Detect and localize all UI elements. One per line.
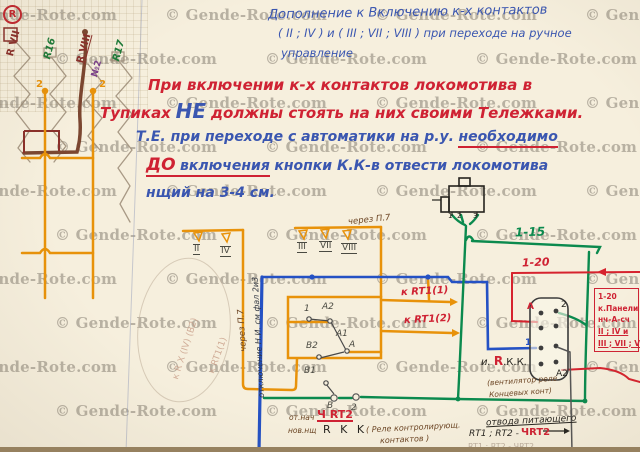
- pin-label-2: 2: [561, 301, 567, 310]
- red-wire-label-1-20: 1-20: [522, 257, 550, 269]
- page-bottom-edge: [0, 447, 640, 452]
- note-line2-red1: Тупиках: [100, 104, 171, 122]
- note-line1: При включении к-х контактов локомотива в: [148, 78, 532, 93]
- note-line3-underlined: необходимо: [458, 129, 557, 148]
- red-box-line2: к.Панели: [598, 303, 638, 315]
- note-line2-blue: НЕ: [176, 99, 206, 123]
- contact-label-iii: III: [297, 242, 307, 253]
- red-box-line4: II ; IV и: [598, 326, 638, 338]
- scanned-schematic-page: © Gende-Rote.com© Gende-Rote.com© Gende-…: [0, 0, 640, 452]
- note-line4-blue1: включения: [180, 158, 270, 174]
- page-crease-line: [126, 0, 142, 452]
- switch-label-b2: B2: [306, 342, 318, 351]
- red-box-line1: 1-20: [598, 291, 638, 303]
- contact-label-iv: IV: [220, 246, 231, 257]
- switch-terminal-2: [353, 394, 359, 400]
- red-box-line3: нч-А-сч: [598, 314, 638, 326]
- note-line4-red: ДО: [146, 155, 176, 175]
- switch-label-1: 1: [304, 305, 310, 314]
- switch-label-a1: A1: [336, 330, 348, 339]
- switch-label-b1: B1: [304, 367, 316, 376]
- header-note-line2: ( II ; IV ) и ( III ; VII ; VIII ) при п…: [278, 28, 572, 40]
- device-pin-2: 2: [457, 213, 461, 220]
- device-pin-3: 3: [473, 213, 477, 220]
- green-wire-label-1-15: 1-15: [515, 225, 545, 238]
- switch-label-a: A: [349, 341, 355, 350]
- otvod-red: ЧRT2: [521, 428, 550, 438]
- pencil-oval-sketch: [131, 254, 238, 407]
- rkk-prefix: и.: [481, 357, 491, 368]
- rkk-r: R: [494, 354, 503, 368]
- device-pin-1: 1: [448, 213, 452, 220]
- header-note-line3: управление: [281, 48, 353, 60]
- relay-connector: [530, 298, 568, 380]
- contact-label-ii: II: [193, 244, 200, 255]
- note-line4-blue2: кнопки К.К-в отвести локомотива: [274, 158, 548, 174]
- note-line2-red2: должны стоять на них своими Тележками.: [211, 104, 583, 122]
- red-annotation-box: 1-20 к.Панели нч-А-сч II ; IV и III ; VI…: [594, 288, 639, 352]
- wire-label-2a: 2: [36, 80, 43, 90]
- note-line5: нщий на 3-4 см.: [146, 186, 275, 200]
- bottom-ot-nach: от.нач: [289, 414, 314, 422]
- otvod-line2: RT1 ; RT2 -: [469, 430, 519, 439]
- contact-label-viii: VIII: [341, 243, 357, 254]
- wire-label-2b: 2: [99, 80, 106, 90]
- rkk-suffix: .К.К.: [503, 357, 527, 368]
- end-switch-device: [432, 178, 484, 216]
- pin-label-a: A: [527, 303, 534, 312]
- red-box-line5: III ; VII ; VIII: [598, 338, 638, 350]
- note-line3-blue: Т.Е. при переходе с автоматики на р.у.: [136, 129, 454, 145]
- pin-label-1: 1: [525, 339, 531, 348]
- bottom-rkk: R K K: [323, 424, 367, 435]
- switch-label-a2: A2: [322, 303, 334, 312]
- bottom-nov: нов.нщ: [288, 427, 316, 435]
- contact-label-vii: VII: [319, 241, 332, 252]
- pin-label-a2: A2: [556, 370, 568, 379]
- bottom-ch-rt2: Ч RT2: [317, 409, 353, 422]
